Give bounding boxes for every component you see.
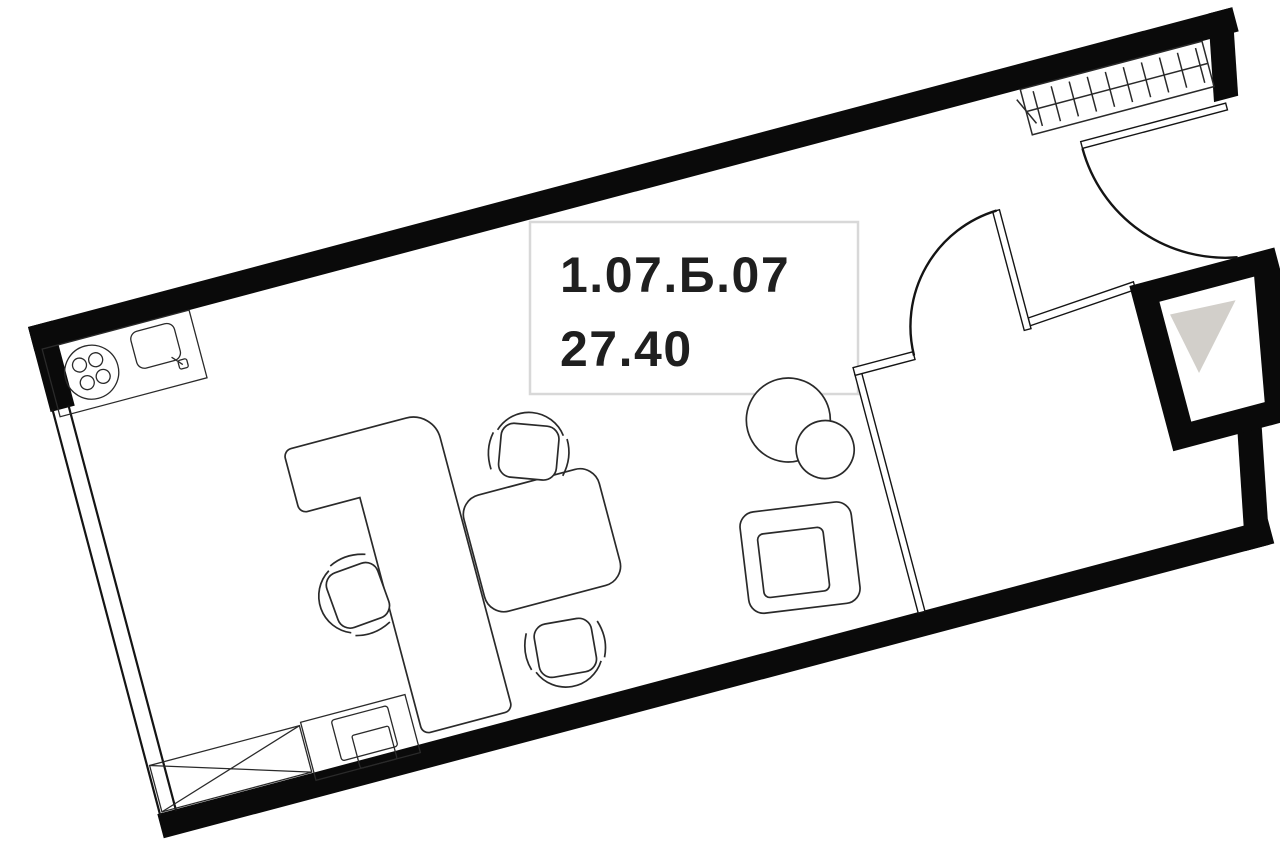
left-facade-window	[52, 405, 176, 815]
unit-number: 1.07.Б.07	[560, 238, 858, 312]
unit-label: 1.07.Б.07 27.40	[530, 222, 858, 394]
floor-plan-canvas: 1.07.Б.07 27.40	[0, 0, 1280, 861]
room-door-leaf	[993, 210, 1031, 331]
bottom-wall	[157, 519, 1274, 838]
office-chair-bottom	[515, 608, 617, 701]
partition-vertical	[855, 373, 925, 614]
partition-horizontal-left	[853, 352, 915, 376]
sink-icon	[129, 321, 189, 380]
floor-plan-drawing	[0, 0, 1280, 861]
meeting-table	[459, 464, 625, 616]
unit-area: 27.40	[560, 312, 858, 386]
l-shaped-desk	[283, 411, 512, 750]
entry-door-leaf	[1081, 103, 1228, 148]
ventilation-shaft	[1129, 247, 1280, 451]
armchair	[738, 500, 861, 615]
partition-horizontal-right	[1026, 282, 1137, 326]
exterior-walls	[28, 7, 1280, 838]
